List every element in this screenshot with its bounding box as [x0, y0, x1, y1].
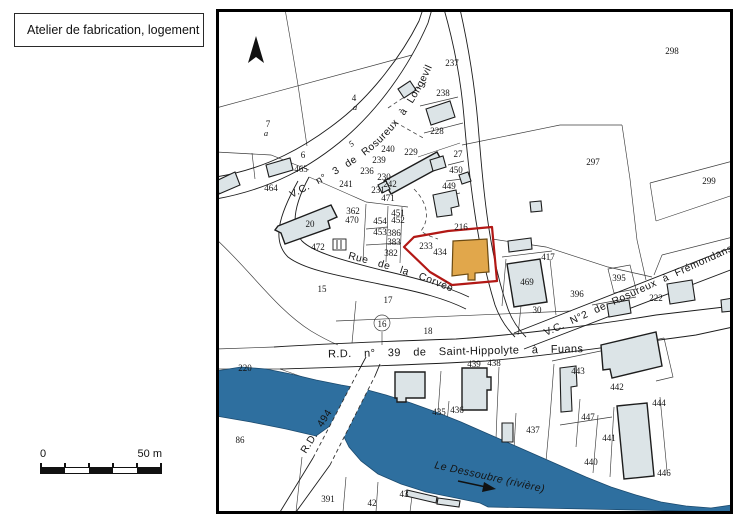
parcel-label-237: 237: [445, 58, 459, 68]
parcel-label-442: 442: [610, 382, 624, 392]
parcel-label-437: 437: [526, 425, 540, 435]
parcel-label-229: 229: [404, 147, 418, 157]
parcel-label-4a: a: [353, 102, 357, 112]
parcel-label-242: 242: [383, 179, 397, 189]
parcel-label-439: 439: [467, 359, 481, 369]
parcel-label-395: 395: [612, 273, 626, 283]
scale-start-label: 0: [40, 448, 46, 460]
title-text: Atelier de fabrication, logement: [15, 23, 199, 37]
parcel-label-447: 447: [581, 412, 595, 422]
parcel-label-471: 471: [381, 193, 395, 203]
parcel-label-383: 383: [387, 237, 401, 247]
scale-bar-graphic: [40, 467, 162, 474]
scale-bar: 0 50 m: [40, 448, 162, 474]
parcel-label-444: 444: [652, 398, 666, 408]
parcel-label-382: 382: [384, 248, 398, 258]
parcel-label-222: 222: [649, 293, 663, 303]
parcel-label-238: 238: [436, 88, 450, 98]
parcel-label-436: 436: [450, 405, 464, 415]
parcel-label-449: 449: [442, 181, 456, 191]
parcel-label-42: 42: [368, 498, 377, 508]
parcel-label-236: 236: [360, 166, 374, 176]
parcel-label-454: 454: [373, 216, 387, 226]
scale-end-label: 50 m: [138, 448, 162, 460]
parcel-label-440: 440: [584, 457, 598, 467]
parcel-label-18: 18: [424, 326, 434, 336]
parcel-label-240: 240: [381, 144, 395, 154]
parcel-label-434: 434: [433, 247, 447, 257]
cadastral-map: V.C. n° 3 de Rosureux à Longeville Rue d…: [216, 9, 733, 514]
parcel-label-435: 435: [432, 407, 446, 417]
parcel-label-17: 17: [384, 295, 394, 305]
title-box: Atelier de fabrication, logement: [14, 13, 204, 47]
parcel-label-396: 396: [570, 289, 584, 299]
parcel-label-20: 20: [306, 219, 316, 229]
parcel-label-472: 472: [311, 242, 325, 252]
scale-ticks: [40, 463, 162, 467]
parcel-label-464: 464: [264, 183, 278, 193]
parcel-label-391: 391: [321, 494, 335, 504]
parcel-label-446: 446: [657, 468, 671, 478]
parcel-label-7a: a: [264, 128, 268, 138]
parcel-label-452: 452: [391, 215, 405, 225]
parcel-label-27: 27: [454, 149, 464, 159]
parcel-label-30: 30: [533, 305, 543, 315]
parcel-label-220: 220: [238, 363, 252, 373]
parcel-label-43: 43: [400, 489, 410, 499]
parcel-label-453: 453: [373, 227, 387, 237]
parcel-label-297: 297: [586, 157, 600, 167]
parcel-label-239: 239: [372, 155, 386, 165]
parcel-label-450: 450: [449, 165, 463, 175]
parcel-label-469: 469: [520, 277, 534, 287]
parcel-label-6: 6: [301, 150, 306, 160]
parcel-label-298: 298: [665, 46, 679, 56]
parcel-label-470: 470: [345, 215, 359, 225]
parcel-label-86: 86: [236, 435, 246, 445]
parcel-label-441: 441: [602, 433, 616, 443]
parcel-label-417: 417: [541, 252, 555, 262]
parcel-label-216: 216: [454, 222, 468, 232]
parcel-label-438: 438: [487, 358, 501, 368]
parcel-label-228: 228: [430, 126, 444, 136]
parcel-label-15: 15: [318, 284, 328, 294]
monument-icon: [333, 239, 346, 250]
parcel-label-16: 16: [378, 319, 388, 329]
parcel-label-241: 241: [339, 179, 353, 189]
parcel-label-443: 443: [571, 366, 585, 376]
page: Atelier de fabrication, logement 0 50 m: [0, 0, 738, 522]
parcel-label-233: 233: [419, 241, 433, 251]
parcel-label-299: 299: [702, 176, 716, 186]
parcel-label-465: 465: [294, 164, 308, 174]
